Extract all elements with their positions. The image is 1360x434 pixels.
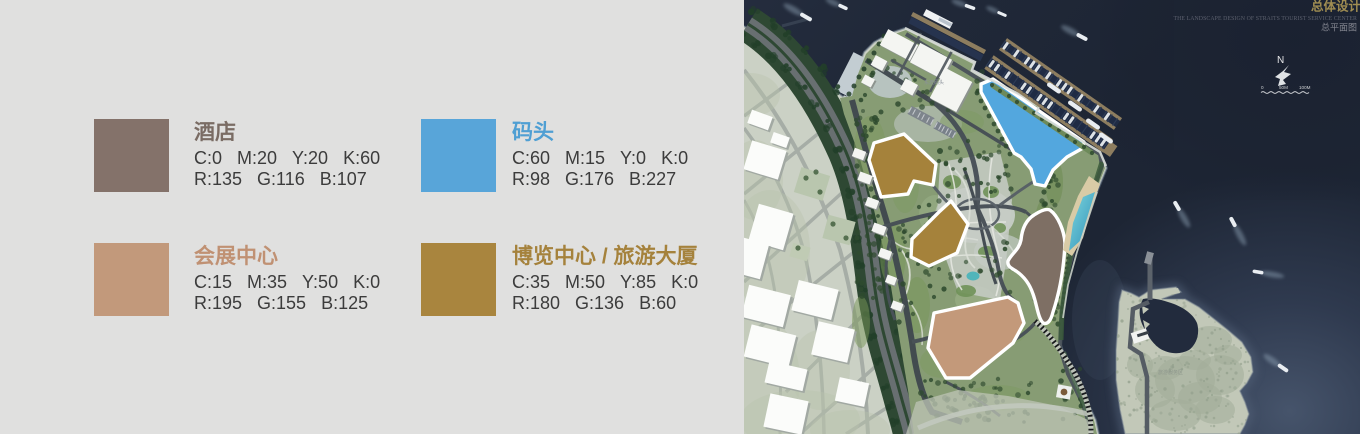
svg-text:N: N: [1277, 55, 1284, 66]
svg-text:THE LANDSCAPE DESIGN OF STRAIT: THE LANDSCAPE DESIGN OF STRAITS TOURIST …: [1173, 16, 1357, 22]
svg-text:总体设计: 总体设计: [1311, 0, 1360, 14]
svg-text:总平面图: 总平面图: [1321, 22, 1357, 33]
svg-text:旅游服务区: 旅游服务区: [1158, 369, 1183, 376]
svg-text:50M: 50M: [1279, 85, 1288, 90]
svg-text:100M: 100M: [1299, 85, 1311, 90]
svg-text:东渡码头: 东渡码头: [924, 79, 944, 86]
svg-text:0: 0: [1261, 85, 1264, 90]
